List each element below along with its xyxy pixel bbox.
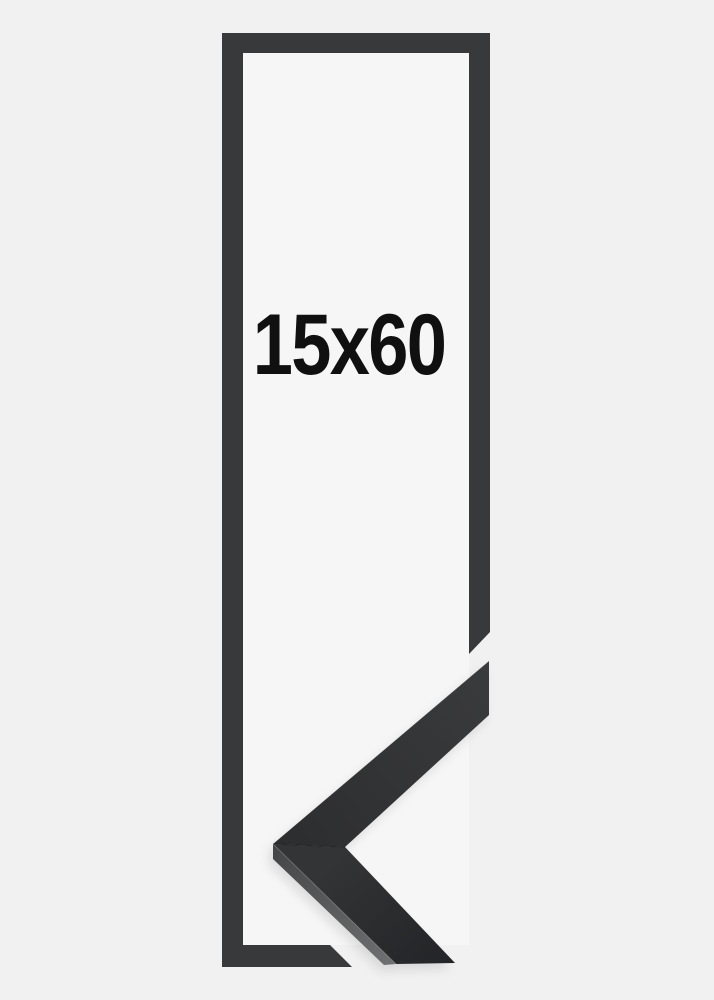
frame-size-mockup-graphic — [0, 0, 714, 1000]
frame-outline-bottom-bar-cut — [222, 945, 352, 967]
frame-product-image: 15x60 — [0, 0, 714, 1000]
frame-size-label: 15x60 — [253, 302, 445, 388]
frame-outline-right-bar-cut — [469, 33, 490, 654]
frame-outline-top-bar — [222, 33, 490, 53]
frame-outline-left-bar — [222, 33, 243, 967]
